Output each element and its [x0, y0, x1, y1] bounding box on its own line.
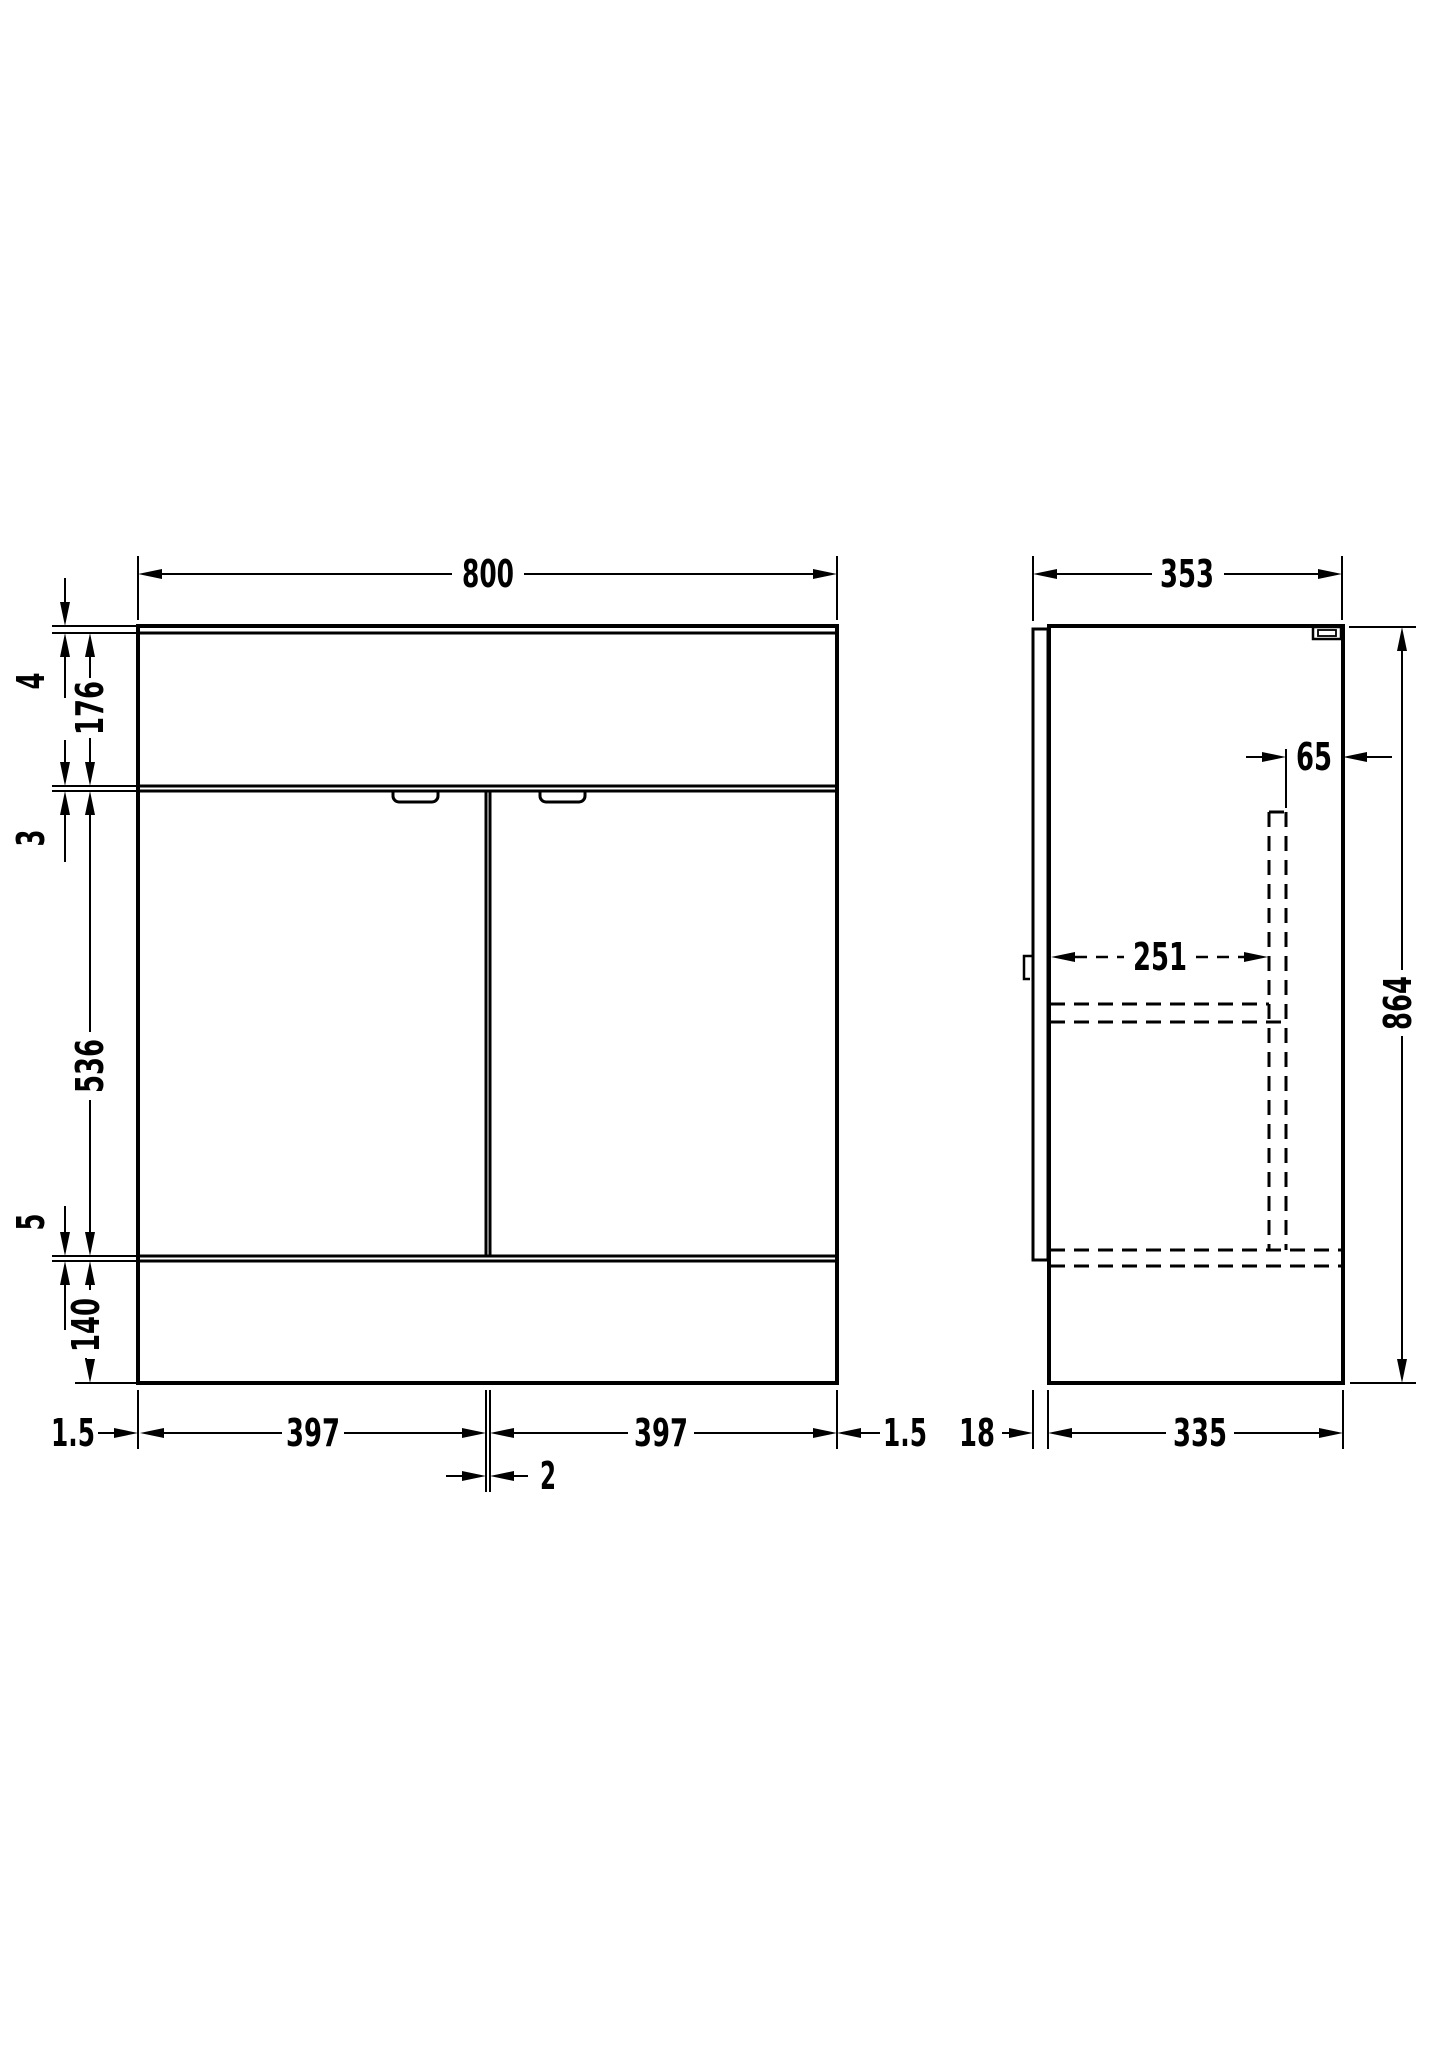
dim-side-overall-height: 864 [1376, 976, 1420, 1030]
dimension-arrowhead [837, 1428, 861, 1438]
drawing-linework [52, 556, 1416, 1492]
dimension-arrowhead [60, 791, 70, 815]
dimension-arrowhead [138, 569, 162, 579]
dim-front-worktop-thickness: 4 [9, 673, 53, 690]
right-door-handle-icon [540, 791, 585, 802]
dimension-arrowhead [1318, 569, 1342, 579]
dim-side-overall-depth: 353 [1160, 552, 1214, 596]
dimension-arrowhead [490, 1471, 514, 1481]
dimension-arrowhead [1343, 752, 1367, 762]
dimension-arrowhead [1033, 569, 1057, 579]
dimension-arrowhead [60, 602, 70, 626]
dimension-arrowhead [114, 1428, 138, 1438]
dim-front-right-door-width: 397 [634, 1411, 688, 1455]
dimension-arrowhead [60, 1232, 70, 1256]
dim-front-center-door-gap: 2 [540, 1454, 556, 1498]
dimension-labels: 800 4 176 3 536 5 140 1.5 397 397 1.5 2 … [9, 552, 1420, 1498]
dimension-arrowhead [60, 762, 70, 786]
dimension-arrowhead [813, 569, 837, 579]
dimension-arrowhead [1397, 1359, 1407, 1383]
dimension-arrowhead [85, 1232, 95, 1256]
technical-drawing-page: 800 4 176 3 536 5 140 1.5 397 397 1.5 2 … [0, 0, 1445, 2045]
dimension-arrowhead [462, 1428, 486, 1438]
wall-fixing-bracket-slot [1318, 630, 1336, 636]
dimension-arrowhead [1397, 627, 1407, 651]
dimension-arrowhead [462, 1471, 486, 1481]
dimension-arrowhead [85, 633, 95, 657]
side-view-door-panel [1033, 629, 1048, 1260]
dim-front-top-gap: 3 [9, 830, 53, 847]
dim-side-internal-clear-depth: 251 [1133, 935, 1187, 979]
dim-front-upper-height: 176 [68, 681, 112, 735]
dim-side-rear-service-gap: 65 [1296, 735, 1332, 779]
dim-front-bottom-gap: 5 [9, 1214, 53, 1231]
dimension-arrowhead [1051, 952, 1075, 962]
dimension-arrowhead [60, 633, 70, 657]
dimension-arrowhead [1048, 1428, 1072, 1438]
vanity-dimension-drawing: 800 4 176 3 536 5 140 1.5 397 397 1.5 2 … [0, 0, 1445, 2045]
dimension-arrowhead [1319, 1428, 1343, 1438]
dim-front-left-margin: 1.5 [51, 1411, 95, 1455]
dimension-arrowhead [490, 1428, 514, 1438]
dimension-arrowhead [85, 1261, 95, 1285]
dimension-arrowhead [60, 1261, 70, 1285]
dimension-arrowhead [85, 1359, 95, 1383]
dimension-arrowhead [85, 791, 95, 815]
dimension-arrowhead [1009, 1428, 1033, 1438]
left-door-handle-icon [393, 791, 438, 802]
dimension-arrowhead [85, 762, 95, 786]
dimension-arrowhead [1244, 952, 1268, 962]
dim-side-door-thickness: 18 [959, 1411, 995, 1455]
dimension-arrowhead [140, 1428, 164, 1438]
dim-front-left-door-width: 397 [286, 1411, 340, 1455]
dim-front-door-height: 536 [68, 1039, 112, 1093]
dim-front-plinth-height: 140 [64, 1298, 108, 1352]
dim-front-width: 800 [462, 552, 514, 596]
dim-front-right-margin: 1.5 [883, 1411, 927, 1455]
dim-side-carcass-depth: 335 [1173, 1411, 1227, 1455]
dimension-arrowhead [1262, 752, 1286, 762]
dimension-arrowhead [813, 1428, 837, 1438]
